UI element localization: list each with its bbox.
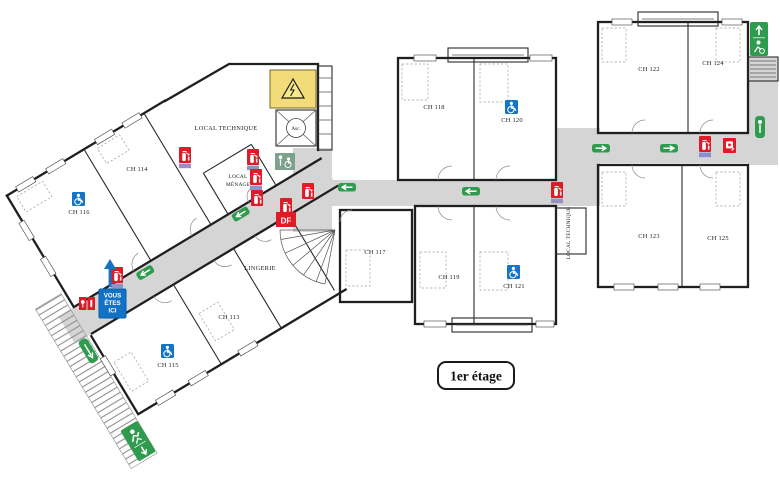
room-label-local-menage-2: MÉNAGE	[226, 180, 251, 188]
room-label-local-menage-1: LOCAL	[229, 174, 248, 180]
room-label-ch119: CH 119	[438, 274, 459, 281]
room-label-ch120: CH 120	[501, 117, 523, 124]
elevator: Asc.	[276, 110, 316, 146]
floor-badge: 1er étage	[438, 362, 514, 389]
fire-extinguisher-icon	[179, 147, 191, 168]
fire-extinguisher-icon	[551, 182, 563, 203]
room-label-ch125: CH 125	[707, 235, 729, 242]
fire-extinguisher-icon	[302, 183, 314, 199]
exit-pictogram-icon	[755, 116, 765, 138]
evacuation-plan-page: Asc.	[0, 0, 780, 483]
room-ch117-walls	[340, 210, 412, 302]
you-are-here-arrowhead-icon	[104, 259, 116, 269]
refuge-area-icon	[275, 153, 295, 170]
evacuation-arrow-icon	[592, 144, 610, 153]
you-are-here-line3: ICI	[109, 308, 117, 315]
room-label-ch121: CH 121	[503, 283, 525, 290]
floor-badge-label: 1er étage	[450, 369, 502, 384]
wheelchair-icon	[507, 265, 520, 279]
fire-extinguisher-icon	[251, 190, 263, 206]
elevator-label: Asc.	[291, 126, 300, 132]
room-label-ch123: CH 123	[638, 233, 660, 240]
fire-extinguisher-icon	[250, 169, 262, 190]
wheelchair-icon	[505, 100, 518, 114]
emergency-exit-sign-icon	[750, 22, 768, 56]
evacuation-arrow-icon	[660, 144, 678, 153]
room-label-ch116: CH 116	[68, 209, 89, 216]
stairwell-shaft	[318, 66, 332, 150]
you-are-here-line1: VOUS	[104, 293, 122, 300]
left-wing	[0, 45, 407, 469]
fire-extinguisher-icon	[247, 149, 259, 170]
evacuation-arrow-icon	[462, 187, 480, 196]
room-label-lingerie: LINGERIE	[244, 265, 275, 272]
room-label-local-technique: LOCAL TECHNIQUE	[195, 125, 258, 132]
manual-call-point-icon	[723, 138, 736, 153]
room-label-ch114: CH 114	[126, 166, 148, 173]
wheelchair-icon	[161, 344, 174, 358]
floor-plan-svg: Asc.	[0, 0, 780, 483]
room-label-ch113: CH 113	[218, 314, 239, 321]
you-are-here-line2: ÊTES	[104, 299, 120, 307]
wheelchair-icon	[72, 192, 85, 206]
fire-door-label: DF	[281, 217, 292, 226]
fire-extinguisher-icon	[280, 198, 292, 214]
room-label-ch115: CH 115	[157, 362, 178, 369]
room-label-ch117: CH 117	[364, 249, 386, 256]
fire-door-marker: DF	[276, 212, 296, 227]
exterior-stair-fan	[280, 230, 335, 284]
fire-extinguisher-icon	[111, 267, 123, 288]
room-label-ch124: CH 124	[702, 60, 724, 67]
room-label-ch118: CH 118	[423, 104, 444, 111]
fire-extinguisher-icon	[699, 136, 711, 157]
room-label-local-technique-shaft: LOCAL TECHNIQUE	[566, 206, 572, 259]
evacuation-arrow-icon	[338, 183, 356, 192]
room-label-ch122: CH 122	[638, 66, 660, 73]
